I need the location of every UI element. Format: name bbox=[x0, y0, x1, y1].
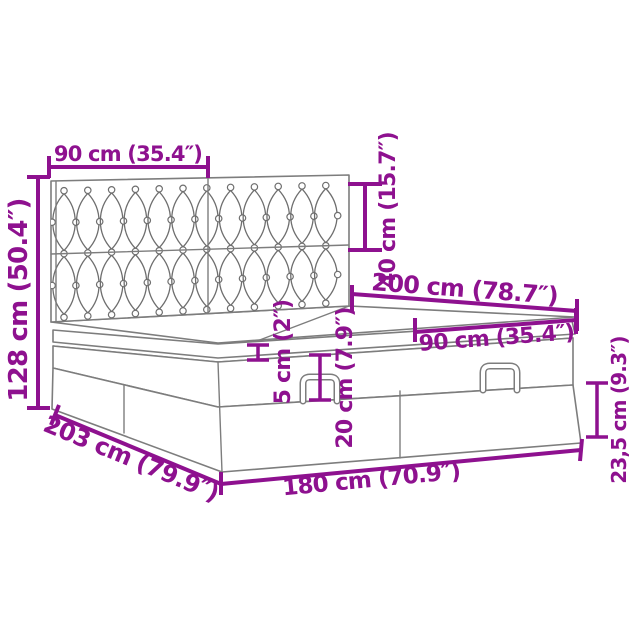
tuft-button bbox=[73, 219, 79, 225]
tuft-button bbox=[85, 187, 91, 193]
tuft-button bbox=[251, 304, 257, 310]
dimension-label: 5 cm (2″) bbox=[271, 300, 296, 405]
tuft-button bbox=[239, 215, 245, 221]
tuft-button bbox=[227, 305, 233, 311]
tuft-button bbox=[61, 314, 67, 320]
tuft-button bbox=[204, 306, 210, 312]
tuft-button bbox=[311, 272, 317, 278]
tuft-button bbox=[73, 282, 79, 288]
tuft-button bbox=[108, 312, 114, 318]
tuft-button bbox=[323, 182, 329, 188]
tuft-button bbox=[287, 214, 293, 220]
tuft-button bbox=[132, 186, 138, 192]
tuft-button bbox=[335, 212, 341, 218]
dimension-label: 40 cm (15.7″) bbox=[376, 132, 401, 288]
tuft-button bbox=[227, 184, 233, 190]
dimension-label: 20 cm (7.9″) bbox=[333, 307, 358, 448]
tuft-button bbox=[204, 185, 210, 191]
dimension-label: 90 cm (35.4″) bbox=[54, 142, 202, 166]
tuft-button bbox=[120, 218, 126, 224]
tuft-button bbox=[132, 310, 138, 316]
tuft-button bbox=[192, 216, 198, 222]
tuft-button bbox=[156, 186, 162, 192]
dimension-label: 128 cm (50.4″) bbox=[4, 198, 34, 401]
bed-dimension-diagram: 90 cm (35.4″) 128 cm (50.4″) 40 cm (15.7… bbox=[0, 0, 640, 640]
tuft-button bbox=[263, 214, 269, 220]
tuft-button bbox=[239, 275, 245, 281]
tuft-button bbox=[180, 185, 186, 191]
tuft-button bbox=[216, 276, 222, 282]
tuft-button bbox=[168, 278, 174, 284]
tuft-button bbox=[263, 274, 269, 280]
tuft-button bbox=[216, 215, 222, 221]
tuft-button bbox=[192, 277, 198, 283]
tuft-button bbox=[180, 308, 186, 314]
tuft-button bbox=[144, 279, 150, 285]
tuft-button bbox=[85, 313, 91, 319]
tuft-button bbox=[287, 273, 293, 279]
tuft-button bbox=[323, 300, 329, 306]
tuft-button bbox=[251, 184, 257, 190]
tuft-button bbox=[156, 309, 162, 315]
product-dimension-diagram: 90 cm (35.4″) 128 cm (50.4″) 40 cm (15.7… bbox=[0, 0, 640, 640]
tuft-button bbox=[97, 218, 103, 224]
tuft-button bbox=[299, 301, 305, 307]
tuft-button bbox=[97, 281, 103, 287]
tuft-button bbox=[275, 183, 281, 189]
tuft-button bbox=[335, 271, 341, 277]
dimension-label: 23,5 cm (9.3″) bbox=[607, 336, 631, 483]
tuft-button bbox=[144, 217, 150, 223]
tuft-button bbox=[108, 187, 114, 193]
tuft-button bbox=[311, 213, 317, 219]
tuft-button bbox=[299, 183, 305, 189]
tuft-button bbox=[61, 188, 67, 194]
tuft-button bbox=[120, 280, 126, 286]
dimension-tick bbox=[580, 439, 582, 461]
tuft-button bbox=[168, 217, 174, 223]
